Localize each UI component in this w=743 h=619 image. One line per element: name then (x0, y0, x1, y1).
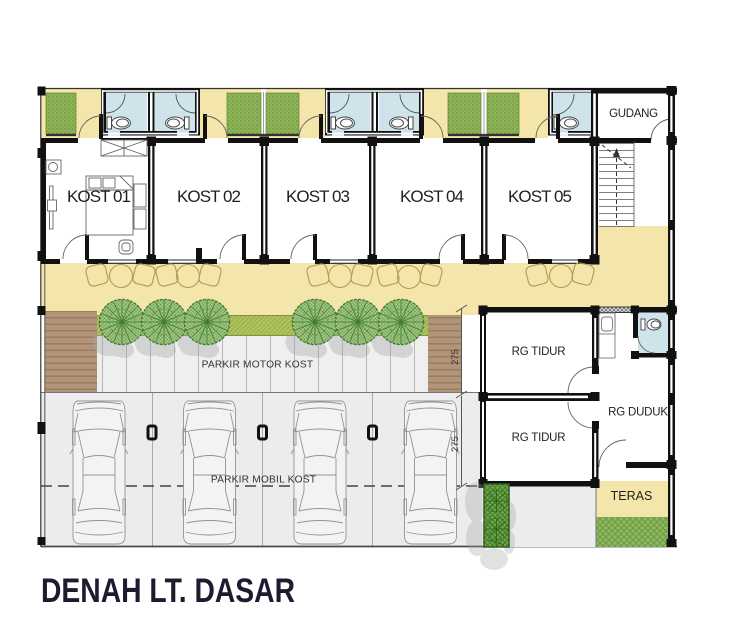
svg-text:GUDANG: GUDANG (609, 108, 658, 120)
svg-text:TERAS: TERAS (611, 489, 653, 503)
svg-text:PARKIR MOBIL KOST: PARKIR MOBIL KOST (211, 475, 316, 486)
svg-text:KOST 05: KOST 05 (508, 187, 572, 206)
svg-text:KOST 03: KOST 03 (286, 187, 350, 206)
svg-text:DENAH LT. DASAR: DENAH LT. DASAR (41, 572, 295, 610)
svg-text:275: 275 (450, 436, 461, 452)
svg-text:KOST 02: KOST 02 (177, 187, 241, 206)
svg-text:275: 275 (450, 349, 461, 365)
svg-text:PARKIR MOTOR KOST: PARKIR MOTOR KOST (202, 360, 314, 371)
svg-text:RG TIDUR: RG TIDUR (512, 432, 566, 444)
svg-text:KOST 01: KOST 01 (67, 187, 131, 206)
svg-text:RG DUDUK: RG DUDUK (608, 407, 668, 419)
svg-text:KOST 04: KOST 04 (400, 187, 464, 206)
svg-text:RG TIDUR: RG TIDUR (512, 346, 566, 358)
